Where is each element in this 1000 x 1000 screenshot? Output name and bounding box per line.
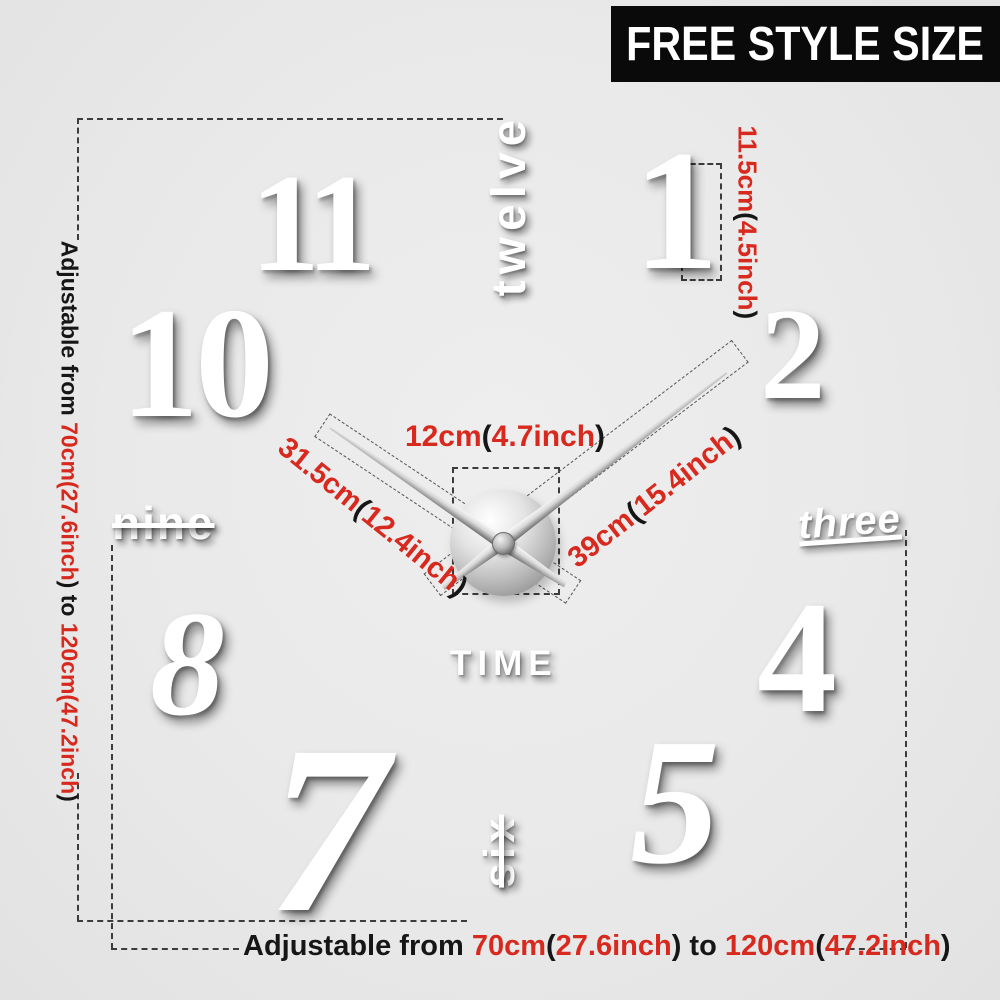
banner-label: FREE STYLE SIZE (627, 17, 985, 72)
hub-center-pin (492, 532, 515, 555)
time-label: TIME (450, 646, 558, 681)
numeral-six: six (478, 803, 528, 899)
numeral-11: 11 (250, 154, 370, 294)
numeral-8: 8 (150, 589, 225, 739)
guide-left-line-upper (77, 118, 79, 240)
guide-bottom-inner-left (111, 948, 239, 950)
numeral-nine: nine (112, 500, 215, 546)
numeral-twelve: twelve (486, 110, 536, 300)
adjustable-range-bottom-label: Adjustable from 70cm(27.6inch) to 120cm(… (243, 931, 823, 963)
guide-right-line (905, 530, 907, 948)
clock-size-infographic: FREE STYLE SIZE 11 twelve 1 10 2 nine th… (0, 0, 1000, 1000)
numeral-1: 1 (633, 125, 719, 297)
adjustable-range-side-label: Adjustable from 70cm(27.6inch) to 120cm(… (56, 241, 81, 773)
numeral-4: 4 (757, 577, 837, 737)
numeral-10: 10 (120, 285, 270, 443)
guide-inner-left-line (111, 545, 113, 949)
numeral-2: 2 (760, 289, 826, 420)
hub-width-label: 12cm(4.7inch) (360, 420, 650, 453)
free-style-size-banner: FREE STYLE SIZE (611, 6, 1000, 82)
guide-top-line (77, 118, 503, 120)
numeral-7: 7 (268, 709, 388, 949)
numeral-three: three (797, 498, 902, 545)
numeral-5: 5 (630, 712, 720, 892)
numeral-height-label: 11.5cm(4.5inch) (733, 122, 762, 322)
